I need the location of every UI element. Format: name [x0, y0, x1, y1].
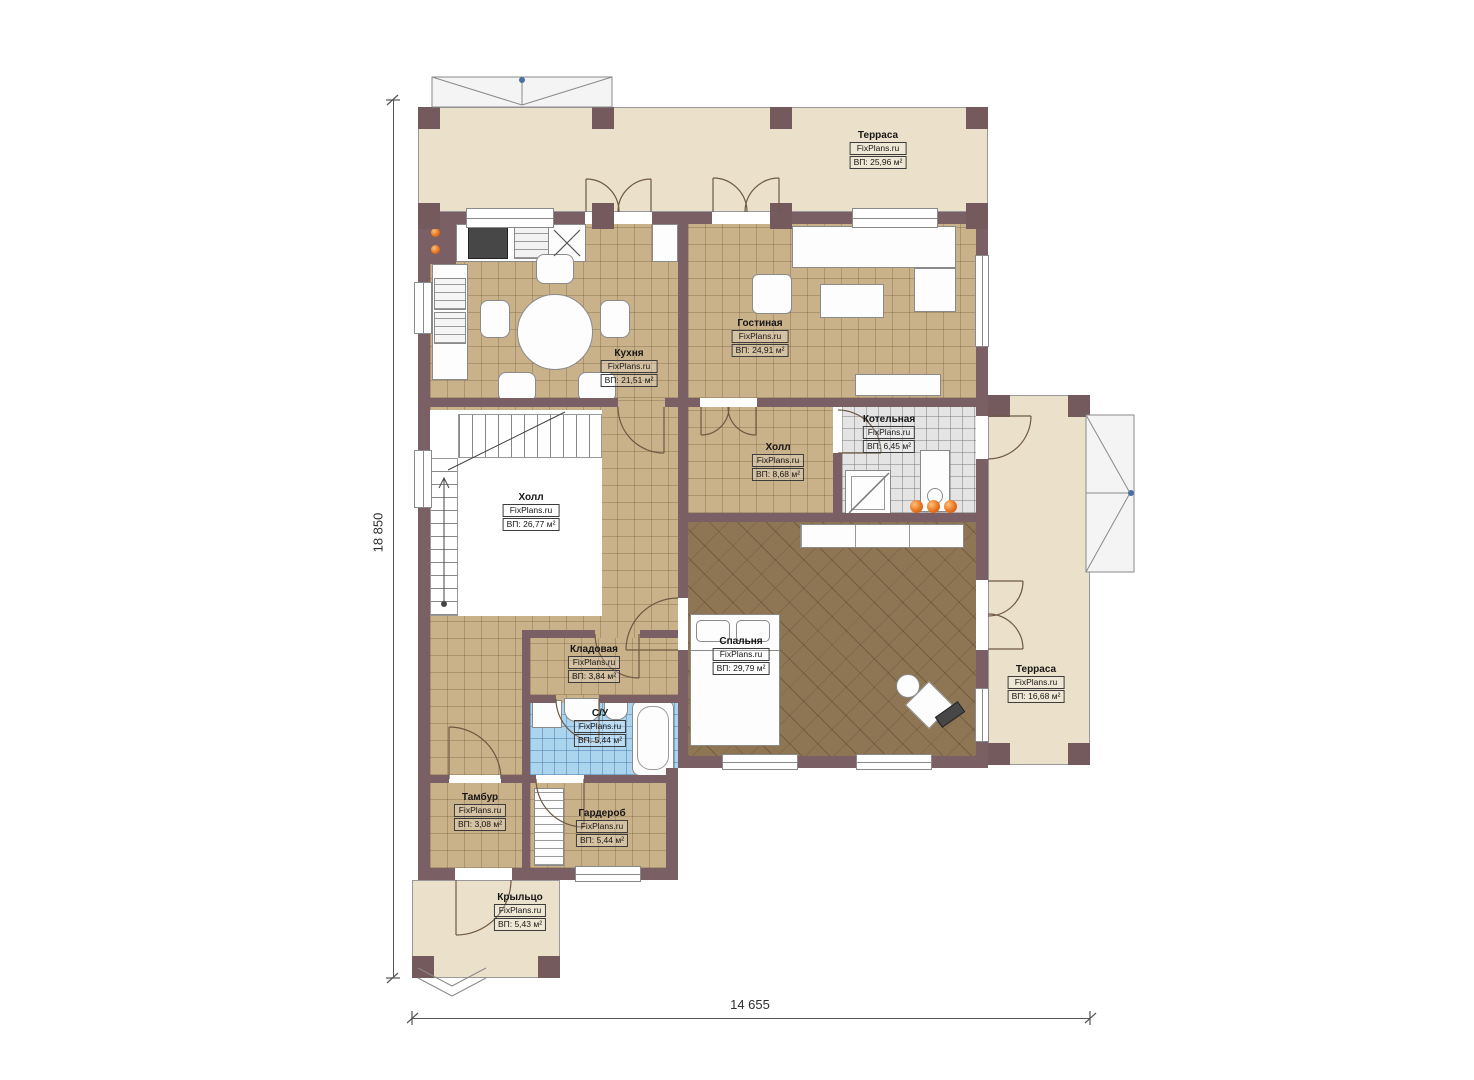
room-name: Кладовая [568, 644, 620, 655]
room-area: ВП: 21,51 м² [601, 374, 658, 387]
wall-south-a [418, 868, 455, 880]
canopy-right [1086, 415, 1134, 572]
watermark: FixPlans.ru [454, 804, 506, 817]
watermark: FixPlans.ru [568, 656, 620, 669]
window-living-north [852, 208, 938, 228]
watermark: FixPlans.ru [863, 426, 915, 439]
room-area: ВП: 6,45 м² [863, 440, 915, 453]
room-label-wc: С/У FixPlans.ru ВП: 5,44 м² [574, 708, 626, 747]
dining-chair [600, 300, 630, 338]
wall-storage-north-b [640, 630, 678, 638]
room-name: Холл [503, 492, 560, 503]
kitchen-counter-right [652, 224, 678, 262]
kitchen-stove [468, 227, 508, 259]
desk-chair [896, 674, 920, 698]
watermark: FixPlans.ru [494, 904, 546, 917]
wall-bedroom-north [688, 513, 976, 522]
wall-midblock-west [522, 630, 530, 868]
room-name: Холл [752, 442, 804, 453]
terrace-right-column [988, 395, 1010, 417]
window-bedroom-south-2 [856, 754, 932, 770]
terrace-right-column [988, 743, 1010, 765]
burner-dot [910, 500, 923, 513]
wall-tambour-north-b [501, 775, 536, 783]
room-area: ВП: 24,91 м² [732, 344, 789, 357]
terrace-right-column [1068, 395, 1090, 417]
coffee-table [820, 284, 884, 318]
room-area: ВП: 8,68 м² [752, 468, 804, 481]
wall-hall-bedroom-b [678, 650, 688, 756]
room-label-wardrobe: Гардероб FixPlans.ru ВП: 5,44 м² [576, 808, 628, 847]
room-name: Кухня [601, 348, 658, 359]
room-area: ВП: 3,08 м² [454, 818, 506, 831]
kitchen-appliance-2 [434, 312, 466, 344]
room-area: ВП: 26,77 м² [503, 518, 560, 531]
sofa [792, 226, 956, 268]
door-gap-entry [455, 868, 512, 880]
room-area: ВП: 25,96 м² [850, 156, 907, 169]
room-area: ВП: 29,79 м² [713, 662, 770, 675]
dining-chair [480, 300, 510, 338]
wall-kitchen-hall-a [430, 398, 618, 407]
wall-bath-north-b [599, 695, 678, 703]
wall-hall-boiler [833, 453, 842, 513]
room-area: ВП: 5,44 м² [576, 834, 628, 847]
room-label-hall-small: Холл FixPlans.ru ВП: 8,68 м² [752, 442, 804, 481]
washer [532, 700, 562, 728]
window-kitchen-west [414, 282, 432, 334]
wall-hall-bedroom-a [678, 407, 688, 598]
wall-tambour-north-a [418, 775, 449, 783]
wall-pilaster [770, 203, 792, 229]
stairs-lower-flight [430, 458, 458, 616]
wardrobe-shelves [534, 788, 564, 866]
terrace-right-floor [988, 395, 1090, 765]
room-name: Терраса [850, 130, 907, 141]
room-label-hall: Холл FixPlans.ru ВП: 26,77 м² [503, 492, 560, 531]
wall-wardrobe-north [584, 775, 678, 783]
room-area: ВП: 5,44 м² [574, 734, 626, 747]
room-name: Гостиная [732, 318, 789, 329]
tv-stand [855, 374, 941, 396]
watermark: FixPlans.ru [574, 720, 626, 733]
wall-east-midblock [666, 768, 678, 880]
wall-living-hall-a [688, 398, 700, 407]
porch-column [412, 956, 434, 978]
stairs-upper-flight [458, 414, 602, 458]
room-label-living: Гостиная FixPlans.ru ВП: 24,91 м² [732, 318, 789, 357]
watermark: FixPlans.ru [601, 360, 658, 373]
dimension-line-bottom [412, 1018, 1090, 1019]
wall-kitchen-hall-b [665, 398, 678, 407]
terrace-column [592, 107, 614, 129]
window-bedroom-south-1 [722, 754, 798, 770]
watermark: FixPlans.ru [752, 454, 804, 467]
porch-column [538, 956, 560, 978]
watermark: FixPlans.ru [576, 820, 628, 833]
shower-tray-inner [851, 476, 885, 510]
window-bedroom-east [975, 688, 989, 742]
dimension-label-left: 18 850 [371, 493, 386, 573]
terrace-column [966, 107, 988, 129]
wall-pilaster [966, 203, 988, 229]
room-name: Гардероб [576, 808, 628, 819]
window-hall-west [414, 450, 432, 508]
wall-storage-north-a [522, 630, 595, 638]
built-in-closet [800, 524, 964, 548]
watermark: FixPlans.ru [850, 142, 907, 155]
floor-plan: 18 850 14 655 Терраса FixPlans.ru ВП: 25… [0, 0, 1474, 1080]
wall-living-hall-b [757, 398, 835, 407]
room-name: Котельная [863, 414, 915, 425]
wall-pilaster [418, 203, 440, 229]
dimension-line-left [393, 100, 394, 978]
dimension-label-bottom: 14 655 [700, 997, 800, 1012]
canopy-top [432, 77, 612, 107]
dining-chair [536, 254, 574, 284]
watermark: FixPlans.ru [732, 330, 789, 343]
radiator-dot [431, 245, 440, 254]
room-area: ВП: 5,43 м² [494, 918, 546, 931]
room-label-boiler: Котельная FixPlans.ru ВП: 6,45 м² [863, 414, 915, 453]
room-label-kitchen: Кухня FixPlans.ru ВП: 21,51 м² [601, 348, 658, 387]
window-living-east [975, 255, 989, 347]
room-area: ВП: 3,84 м² [568, 670, 620, 683]
wall-bath-north-a [522, 695, 556, 703]
door-gap-bedroom-terrace [976, 580, 988, 650]
armchair [752, 274, 792, 314]
door-gap-boiler-terrace [976, 416, 988, 459]
wall-pilaster [592, 203, 614, 229]
room-label-terrace-top: Терраса FixPlans.ru ВП: 25,96 м² [850, 130, 907, 169]
room-label-terrace-right: Терраса FixPlans.ru ВП: 16,68 м² [1008, 664, 1065, 703]
burner-dot [927, 500, 940, 513]
room-label-bedroom: Спальня FixPlans.ru ВП: 29,79 м² [713, 636, 770, 675]
room-name: Крыльцо [494, 892, 546, 903]
wall-kitchen-living [678, 212, 688, 407]
watermark: FixPlans.ru [1008, 676, 1065, 689]
room-name: Спальня [713, 636, 770, 647]
room-label-porch: Крыльцо FixPlans.ru ВП: 5,43 м² [494, 892, 546, 931]
wall-boiler-north [835, 398, 976, 407]
room-name: Терраса [1008, 664, 1065, 675]
window-wardrobe-south [575, 866, 641, 882]
watermark: FixPlans.ru [503, 504, 560, 517]
room-label-storage: Кладовая FixPlans.ru ВП: 3,84 м² [568, 644, 620, 683]
kitchen-appliance-1 [434, 278, 466, 310]
terrace-column [418, 107, 440, 129]
watermark: FixPlans.ru [713, 648, 770, 661]
sofa-corner [914, 268, 956, 312]
terrace-column [770, 107, 792, 129]
window-kitchen-north [466, 208, 554, 228]
bathtub-inner [637, 706, 669, 770]
room-name: С/У [574, 708, 626, 719]
radiator-dot [431, 228, 440, 237]
dining-table [517, 294, 593, 370]
room-name: Тамбур [454, 792, 506, 803]
burner-dot [944, 500, 957, 513]
terrace-right-column [1068, 743, 1090, 765]
room-area: ВП: 16,68 м² [1008, 690, 1065, 703]
room-label-tambour: Тамбур FixPlans.ru ВП: 3,08 м² [454, 792, 506, 831]
